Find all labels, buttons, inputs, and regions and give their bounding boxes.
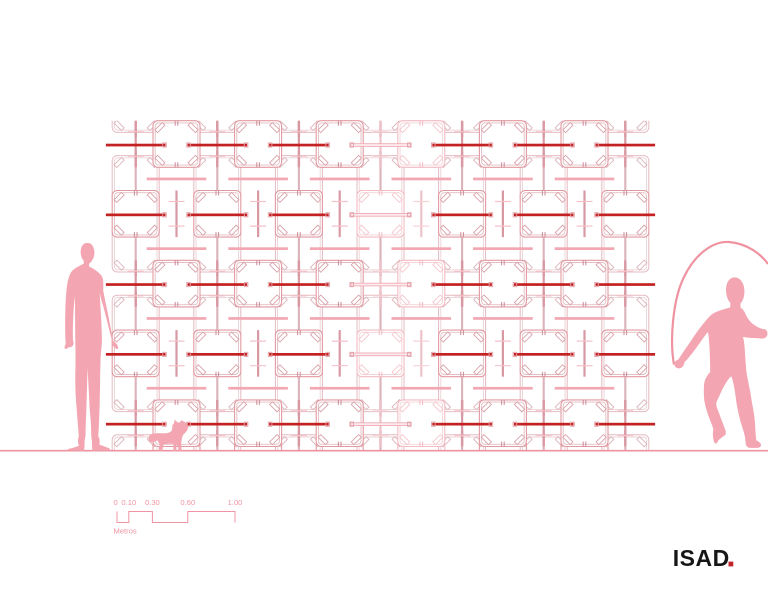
svg-text:Metros: Metros (114, 527, 137, 536)
svg-text:0: 0 (114, 498, 118, 507)
svg-text:0.10: 0.10 (121, 498, 136, 507)
svg-text:ISAD: ISAD (673, 545, 730, 571)
svg-text:1.00: 1.00 (228, 498, 243, 507)
svg-text:0.30: 0.30 (145, 498, 160, 507)
svg-text:0.60: 0.60 (180, 498, 195, 507)
